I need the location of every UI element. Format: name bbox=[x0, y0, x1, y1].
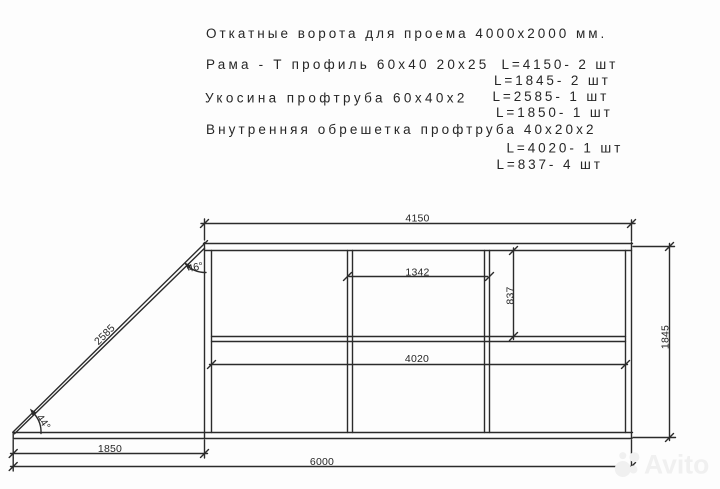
svg-text:L=837- 4 шт: L=837- 4 шт bbox=[497, 157, 603, 172]
svg-text:44°: 44° bbox=[34, 412, 53, 432]
svg-text:1850: 1850 bbox=[98, 443, 122, 455]
svg-text:Avito: Avito bbox=[644, 450, 709, 480]
svg-text:6000: 6000 bbox=[310, 456, 334, 468]
svg-text:Рама - Т профиль 60х40 20х25: Рама - Т профиль 60х40 20х25 bbox=[206, 57, 489, 72]
svg-text:L=1845- 2 шт: L=1845- 2 шт bbox=[494, 73, 611, 88]
svg-text:Внутренняя обрешетка профтруба: Внутренняя обрешетка профтруба 40х20х2 bbox=[206, 122, 597, 137]
svg-text:1342: 1342 bbox=[405, 267, 429, 279]
svg-text:4150: 4150 bbox=[405, 213, 429, 225]
svg-text:L=4020- 1 шт: L=4020- 1 шт bbox=[507, 141, 624, 156]
svg-text:L=4150- 2 шт: L=4150- 2 шт bbox=[502, 57, 619, 72]
svg-text:837: 837 bbox=[505, 286, 517, 304]
svg-text:1845: 1845 bbox=[660, 325, 672, 349]
svg-text:2585: 2585 bbox=[92, 322, 118, 348]
svg-text:Откатные ворота для проема 400: Откатные ворота для проема 4000х2000 мм. bbox=[206, 26, 607, 41]
svg-text:L=1850- 1 шт: L=1850- 1 шт bbox=[496, 105, 613, 120]
svg-text:Укосина профтруба 60х40х2: Укосина профтруба 60х40х2 bbox=[205, 91, 468, 106]
svg-text:4020: 4020 bbox=[405, 353, 429, 365]
svg-text:L=2585- 1 шт: L=2585- 1 шт bbox=[493, 89, 610, 104]
